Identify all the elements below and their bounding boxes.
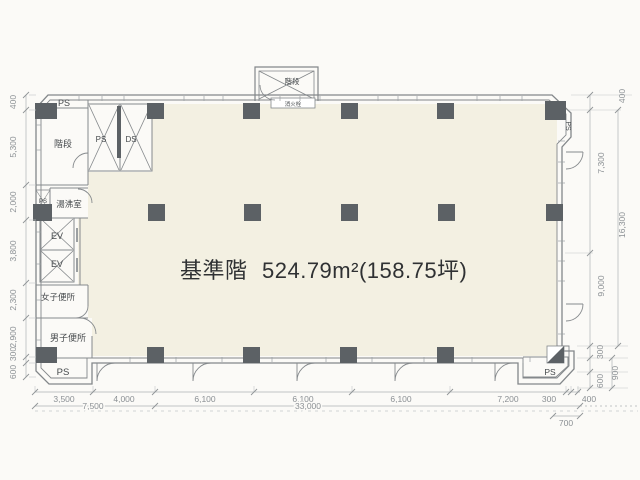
dim-total-7500: 7,500 (82, 401, 104, 411)
room-label-elevator-1: EV (51, 231, 63, 241)
dim-bottom-3500: 3,500 (53, 394, 75, 404)
dim-bottom-300: 300 (542, 394, 556, 404)
dim-bottom-4000: 4,000 (113, 394, 135, 404)
room-label-womens-toilet: 女子便所 (41, 292, 76, 302)
room-label-kitchenette: 湯沸室 (56, 199, 82, 209)
dim-right-7300: 7,300 (596, 152, 606, 174)
dim-left-600: 600 (8, 365, 18, 379)
dim-right-600: 600 (595, 374, 605, 388)
room-label-ds-shaft: DS (125, 135, 136, 144)
room-label-stairs-left: 階段 (54, 138, 72, 149)
dim-bottom-7200: 7,200 (497, 394, 519, 404)
dim-right-9000: 9,000 (596, 275, 606, 297)
dim-left-400: 400 (8, 95, 18, 109)
dim-left-2900: 2,900 (8, 326, 18, 348)
floor-plan-page: PS 階段 PS DS 湯沸室 PS EV EV 女子便所 男子便所 PS 階段… (0, 0, 640, 480)
room-label-ps-top-left: PS (58, 98, 70, 108)
dim-bottom-6100a: 6,100 (194, 394, 216, 404)
room-label-fire-hydrant: 消火栓 (285, 100, 302, 108)
dim-left-2300: 2,300 (8, 289, 18, 311)
dim-total-33000: 33,000 (295, 401, 321, 411)
room-label-ps-bottom-left: PS (57, 367, 70, 378)
floor-plan-drawing: PS 階段 PS DS 湯沸室 PS EV EV 女子便所 男子便所 PS 階段… (0, 0, 640, 480)
room-label-mens-toilet: 男子便所 (50, 332, 86, 343)
dim-right-300: 300 (595, 345, 605, 359)
room-label-elevator-2: EV (51, 259, 63, 269)
room-label-ps-top-right: PS (564, 121, 571, 131)
room-label-ps-bottom-right: PS (544, 367, 556, 377)
dim-left-300: 300 (8, 347, 18, 361)
dim-right-400: 400 (617, 89, 627, 103)
dim-left-5300: 5,300 (8, 136, 18, 158)
room-label-stairs-top: 階段 (285, 76, 300, 86)
room-label-ps-shaft: PS (96, 135, 107, 144)
floor-area-value: 524.79m²(158.75坪) (262, 258, 467, 283)
dim-right-16300: 16,300 (617, 212, 627, 238)
dimensions-right: 400 7,300 16,300 9,000 300 900 600 (595, 89, 627, 388)
room-label-ps-kitchenette: PS (39, 199, 47, 205)
dim-total-700: 700 (559, 418, 573, 428)
dim-bottom-6100c: 6,100 (390, 394, 412, 404)
dim-right-900: 900 (610, 366, 620, 380)
dimensions-left: 400 5,300 2,000 3,800 2,300 2,900 300 60… (8, 95, 18, 379)
floor-area (78, 104, 557, 356)
floor-title: 基準階 524.79m²(158.75坪) (180, 258, 467, 283)
floor-name: 基準階 (180, 258, 248, 283)
dim-left-3800: 3,800 (8, 240, 18, 262)
dim-bottom-400: 400 (582, 394, 596, 404)
dim-left-2000: 2,000 (8, 191, 18, 213)
